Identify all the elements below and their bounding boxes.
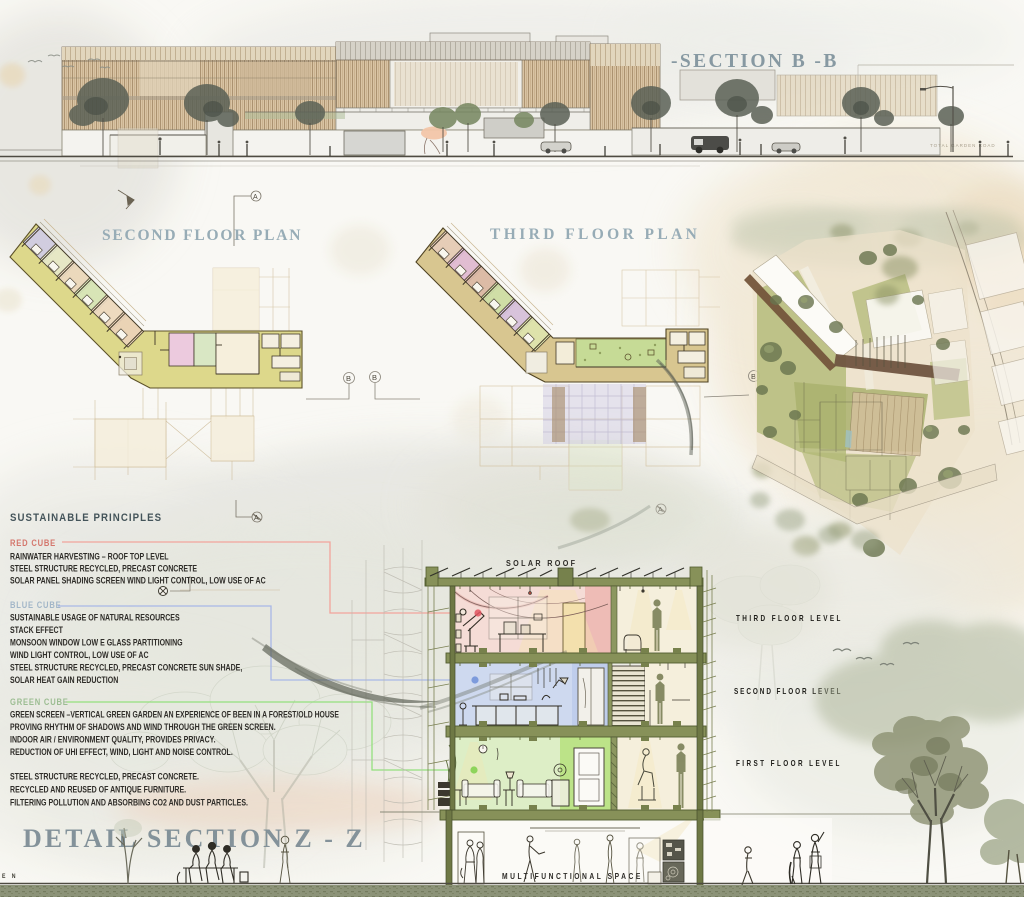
svg-text:SUSTAINABLE PRINCIPLES: SUSTAINABLE PRINCIPLES: [10, 513, 162, 525]
svg-text:A: A: [254, 515, 259, 522]
svg-text:FILTERING POLLUTION AND ABSORB: FILTERING POLLUTION AND ABSORBING CO2 AN…: [10, 796, 248, 807]
svg-text:THIRD FLOOR PLAN: THIRD FLOOR PLAN: [490, 226, 700, 243]
svg-text:B: B: [372, 373, 377, 382]
svg-text:STACK EFFECT: STACK EFFECT: [10, 624, 63, 635]
svg-text:FIRST FLOOR LEVEL: FIRST FLOOR LEVEL: [736, 758, 842, 768]
svg-text:STEEL STRUCTURE RECYCLED, PREC: STEEL STRUCTURE RECYCLED, PRECAST CONCRE…: [10, 770, 199, 781]
svg-text:RED CUBE: RED CUBE: [10, 537, 56, 548]
svg-text:SOLAR HEAT GAIN REDUCTION: SOLAR HEAT GAIN REDUCTION: [10, 674, 118, 685]
svg-text:SUSTAINABLE USAGE OF NATURAL R: SUSTAINABLE USAGE OF NATURAL RESOURCES: [10, 611, 180, 622]
svg-text:REDUCTION OF UHI EFFECT, WIND,: REDUCTION OF UHI EFFECT, WIND, LIGHT AND…: [10, 746, 233, 757]
svg-text:SOLAR ROOF: SOLAR ROOF: [506, 559, 577, 568]
svg-text:E N: E N: [2, 874, 18, 881]
svg-text:MULTIFUNCTIONAL SPACE: MULTIFUNCTIONAL SPACE: [502, 871, 643, 881]
svg-text:STEEL STRUCTURE RECYCLED, PREC: STEEL STRUCTURE RECYCLED, PRECAST CONCRE…: [10, 661, 242, 672]
svg-text:BLUE CUBE: BLUE CUBE: [10, 599, 62, 610]
svg-text:THIRD FLOOR LEVEL: THIRD FLOOR LEVEL: [736, 613, 843, 623]
svg-text:STEEL STRUCTURE RECYCLED, PREC: STEEL STRUCTURE RECYCLED, PRECAST CONCRE…: [10, 562, 197, 573]
svg-text:B: B: [346, 374, 351, 383]
svg-text:INDOOR AIR / ENVIRONMENT QUALI: INDOOR AIR / ENVIRONMENT QUALITY, PROVID…: [10, 733, 216, 744]
svg-text:WIND LIGHT CONTROL, LOW USE OF: WIND LIGHT CONTROL, LOW USE OF AC: [10, 649, 149, 660]
svg-text:SOLAR PANEL SHADING SCREEN WIN: SOLAR PANEL SHADING SCREEN WIND LIGHT CO…: [10, 574, 266, 585]
svg-text:RAINWATER HARVESTING – ROOF TO: RAINWATER HARVESTING – ROOF TOP LEVEL: [10, 550, 169, 561]
svg-text:A: A: [253, 194, 258, 201]
svg-text:MONSOON WINDOW LOW E GLASS PAR: MONSOON WINDOW LOW E GLASS PARTITIONING: [10, 636, 183, 647]
svg-text:TOTAL GARDEN ROAD: TOTAL GARDEN ROAD: [930, 143, 996, 148]
svg-text:GREEN CUBE: GREEN CUBE: [10, 696, 69, 707]
svg-text:GREEN SCREEN –VERTICAL GREEN G: GREEN SCREEN –VERTICAL GREEN GARDEN AN E…: [10, 709, 339, 719]
svg-text:RECYCLED AND REUSED OF ANTIQUE: RECYCLED AND REUSED OF ANTIQUE FURNITURE…: [10, 783, 186, 794]
svg-text:PROVING RHYTHM OF SHADOWS AND: PROVING RHYTHM OF SHADOWS AND WIND THROU…: [10, 721, 276, 732]
svg-text:SECOND FLOOR PLAN: SECOND FLOOR PLAN: [102, 227, 302, 244]
svg-text:-SECTION B -B: -SECTION B -B: [671, 51, 839, 72]
